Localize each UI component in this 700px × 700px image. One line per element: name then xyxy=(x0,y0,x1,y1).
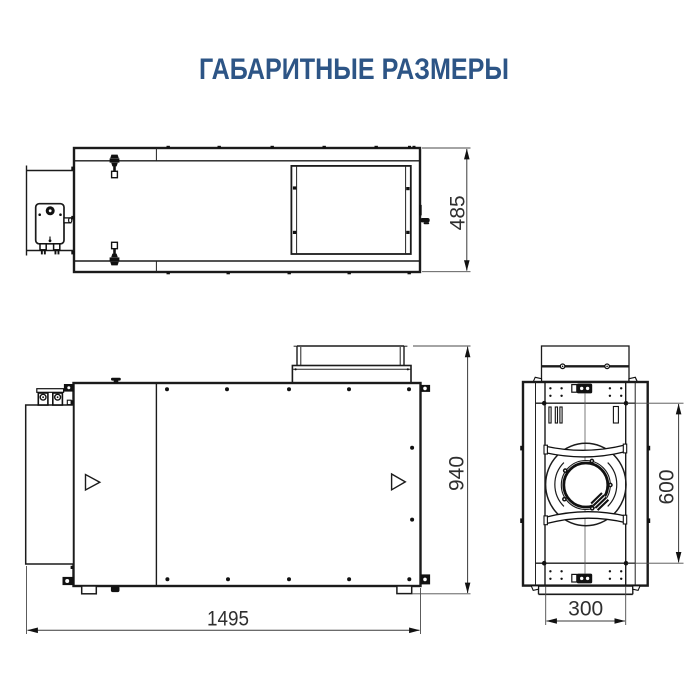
svg-text:485: 485 xyxy=(447,195,470,230)
svg-text:1495: 1495 xyxy=(207,608,249,631)
svg-text:600: 600 xyxy=(656,469,679,504)
svg-text:ГАБАРИТНЫЕ РАЗМЕРЫ: ГАБАРИТНЫЕ РАЗМЕРЫ xyxy=(199,53,509,86)
svg-text:300: 300 xyxy=(568,598,603,621)
svg-text:940: 940 xyxy=(446,456,469,491)
